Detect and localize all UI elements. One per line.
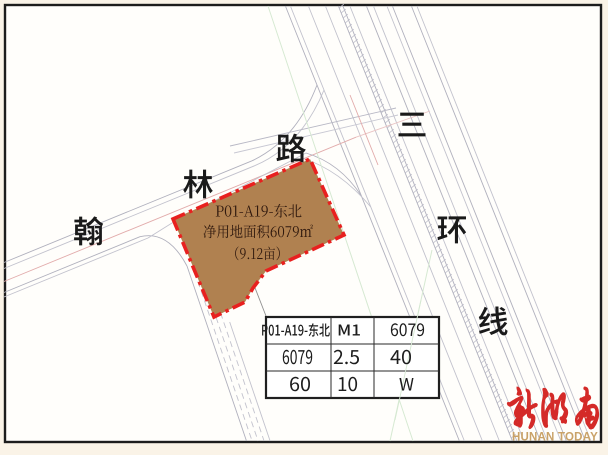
svg-text:HUNAN TODAY: HUNAN TODAY (512, 432, 598, 444)
